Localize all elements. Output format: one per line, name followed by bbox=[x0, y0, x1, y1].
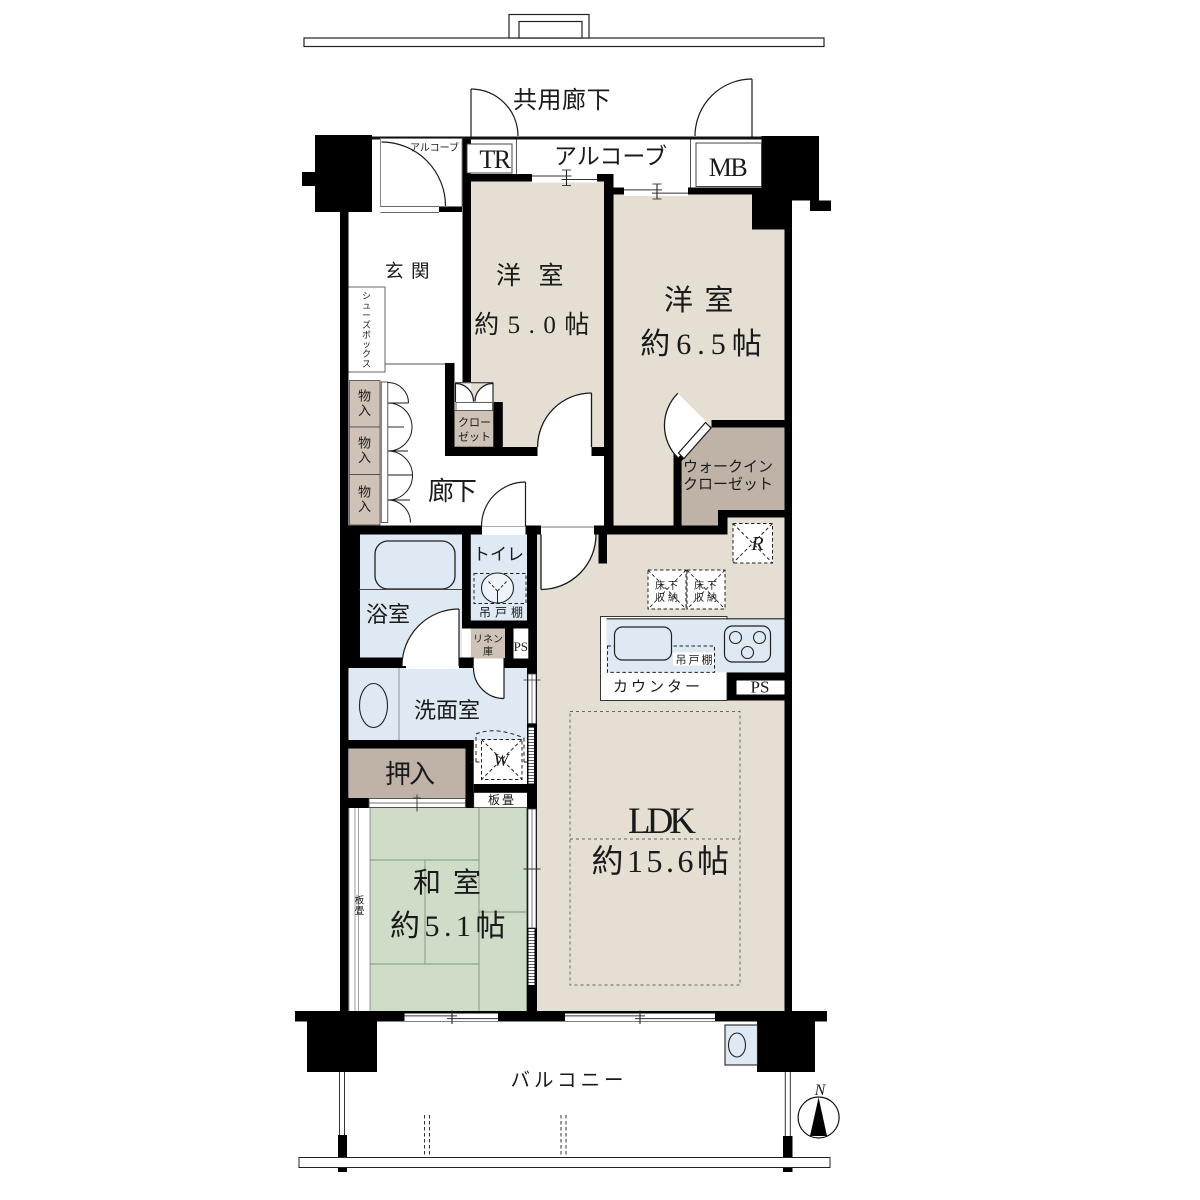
svg-text:クロー: クロー bbox=[458, 416, 491, 429]
svg-text:床下: 床下 bbox=[694, 579, 720, 592]
svg-text:PS: PS bbox=[751, 678, 770, 697]
svg-text:庫: 庫 bbox=[483, 645, 493, 658]
svg-text:W: W bbox=[494, 750, 511, 770]
svg-text:収納: 収納 bbox=[655, 591, 681, 604]
svg-text:板畳: 板畳 bbox=[488, 793, 516, 807]
svg-text:クローゼット: クローゼット bbox=[683, 476, 773, 493]
svg-text:物入: 物入 bbox=[358, 436, 371, 466]
svg-text:共用廊下: 共用廊下 bbox=[513, 87, 611, 114]
svg-text:吊戸棚: 吊戸棚 bbox=[479, 605, 527, 620]
svg-text:約15.6帖: 約15.6帖 bbox=[591, 843, 732, 879]
svg-text:床下: 床下 bbox=[655, 579, 681, 592]
svg-text:バルコニー: バルコニー bbox=[510, 1070, 627, 1092]
svg-text:約5.0帖: 約5.0帖 bbox=[474, 311, 598, 339]
svg-text:収納: 収納 bbox=[694, 591, 720, 604]
svg-text:TR: TR bbox=[479, 145, 511, 174]
svg-text:アルコーブ: アルコーブ bbox=[410, 141, 459, 154]
svg-text:リネン: リネン bbox=[473, 634, 503, 646]
svg-text:洗面室: 洗面室 bbox=[414, 698, 480, 723]
svg-text:ゼット: ゼット bbox=[458, 431, 491, 444]
svg-text:約5.1帖: 約5.1帖 bbox=[390, 910, 510, 943]
svg-text:物入: 物入 bbox=[358, 389, 371, 419]
svg-text:MB: MB bbox=[709, 153, 748, 182]
svg-text:カウンター: カウンター bbox=[613, 679, 703, 696]
svg-text:約6.5帖: 約6.5帖 bbox=[640, 328, 768, 361]
svg-text:N: N bbox=[814, 1082, 827, 1099]
svg-text:吊戸棚: 吊戸棚 bbox=[676, 653, 715, 667]
svg-text:R: R bbox=[750, 533, 763, 555]
svg-text:洋室: 洋室 bbox=[496, 262, 581, 290]
svg-text:アルコーブ: アルコーブ bbox=[554, 144, 667, 169]
svg-text:LDK: LDK bbox=[628, 801, 696, 842]
svg-text:物入: 物入 bbox=[358, 485, 371, 515]
svg-text:玄関: 玄関 bbox=[385, 262, 437, 283]
svg-text:板畳: 板畳 bbox=[355, 894, 365, 917]
svg-text:和室: 和室 bbox=[413, 867, 493, 899]
svg-text:PS: PS bbox=[514, 639, 528, 654]
svg-text:洋室: 洋室 bbox=[664, 284, 745, 317]
svg-text:廊下: 廊下 bbox=[428, 477, 476, 506]
svg-text:シューズボックス: シューズボックス bbox=[362, 291, 371, 369]
svg-text:トイレ: トイレ bbox=[473, 545, 524, 564]
svg-text:ウォークイン: ウォークイン bbox=[683, 459, 773, 476]
svg-text:押入: 押入 bbox=[385, 760, 435, 789]
svg-text:浴室: 浴室 bbox=[366, 602, 410, 627]
